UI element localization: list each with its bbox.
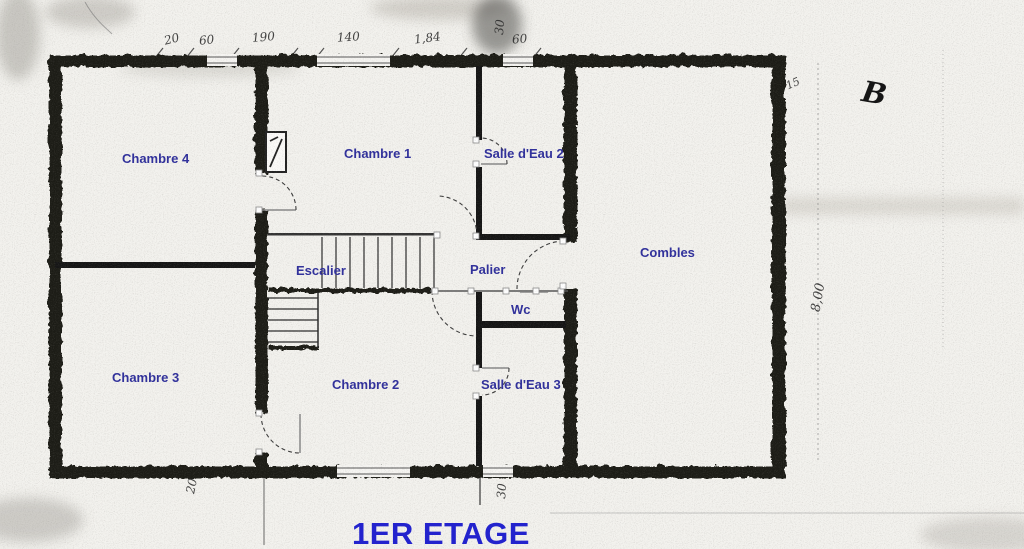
floor-plan-page: Chambre 4 Chambre 1 Salle d'Eau 2 Comble… [0, 0, 1024, 549]
dim-top-30: 30 [492, 19, 507, 35]
room-label-chambre-4: Chambre 4 [122, 151, 189, 166]
room-label-wc: Wc [511, 302, 531, 317]
dim-top-60b: 60 [511, 31, 527, 46]
room-label-escalier: Escalier [296, 263, 346, 278]
dim-top-140: 140 [337, 29, 361, 45]
letter-mark-b: B [859, 74, 889, 112]
dim-top-60: 60 [198, 32, 215, 48]
dim-top-190: 190 [251, 29, 275, 45]
room-label-salle-eau-3: Salle d'Eau 3 [481, 377, 561, 392]
room-label-chambre-3: Chambre 3 [112, 370, 179, 385]
room-label-chambre-2: Chambre 2 [332, 377, 399, 392]
room-label-palier: Palier [470, 262, 505, 277]
room-label-salle-eau-2: Salle d'Eau 2 [484, 146, 564, 161]
room-label-chambre-1: Chambre 1 [344, 146, 411, 161]
room-label-combles: Combles [640, 245, 695, 260]
dim-bottom-30: 30 [494, 483, 509, 499]
floor-title: 1ER ETAGE [352, 516, 530, 549]
